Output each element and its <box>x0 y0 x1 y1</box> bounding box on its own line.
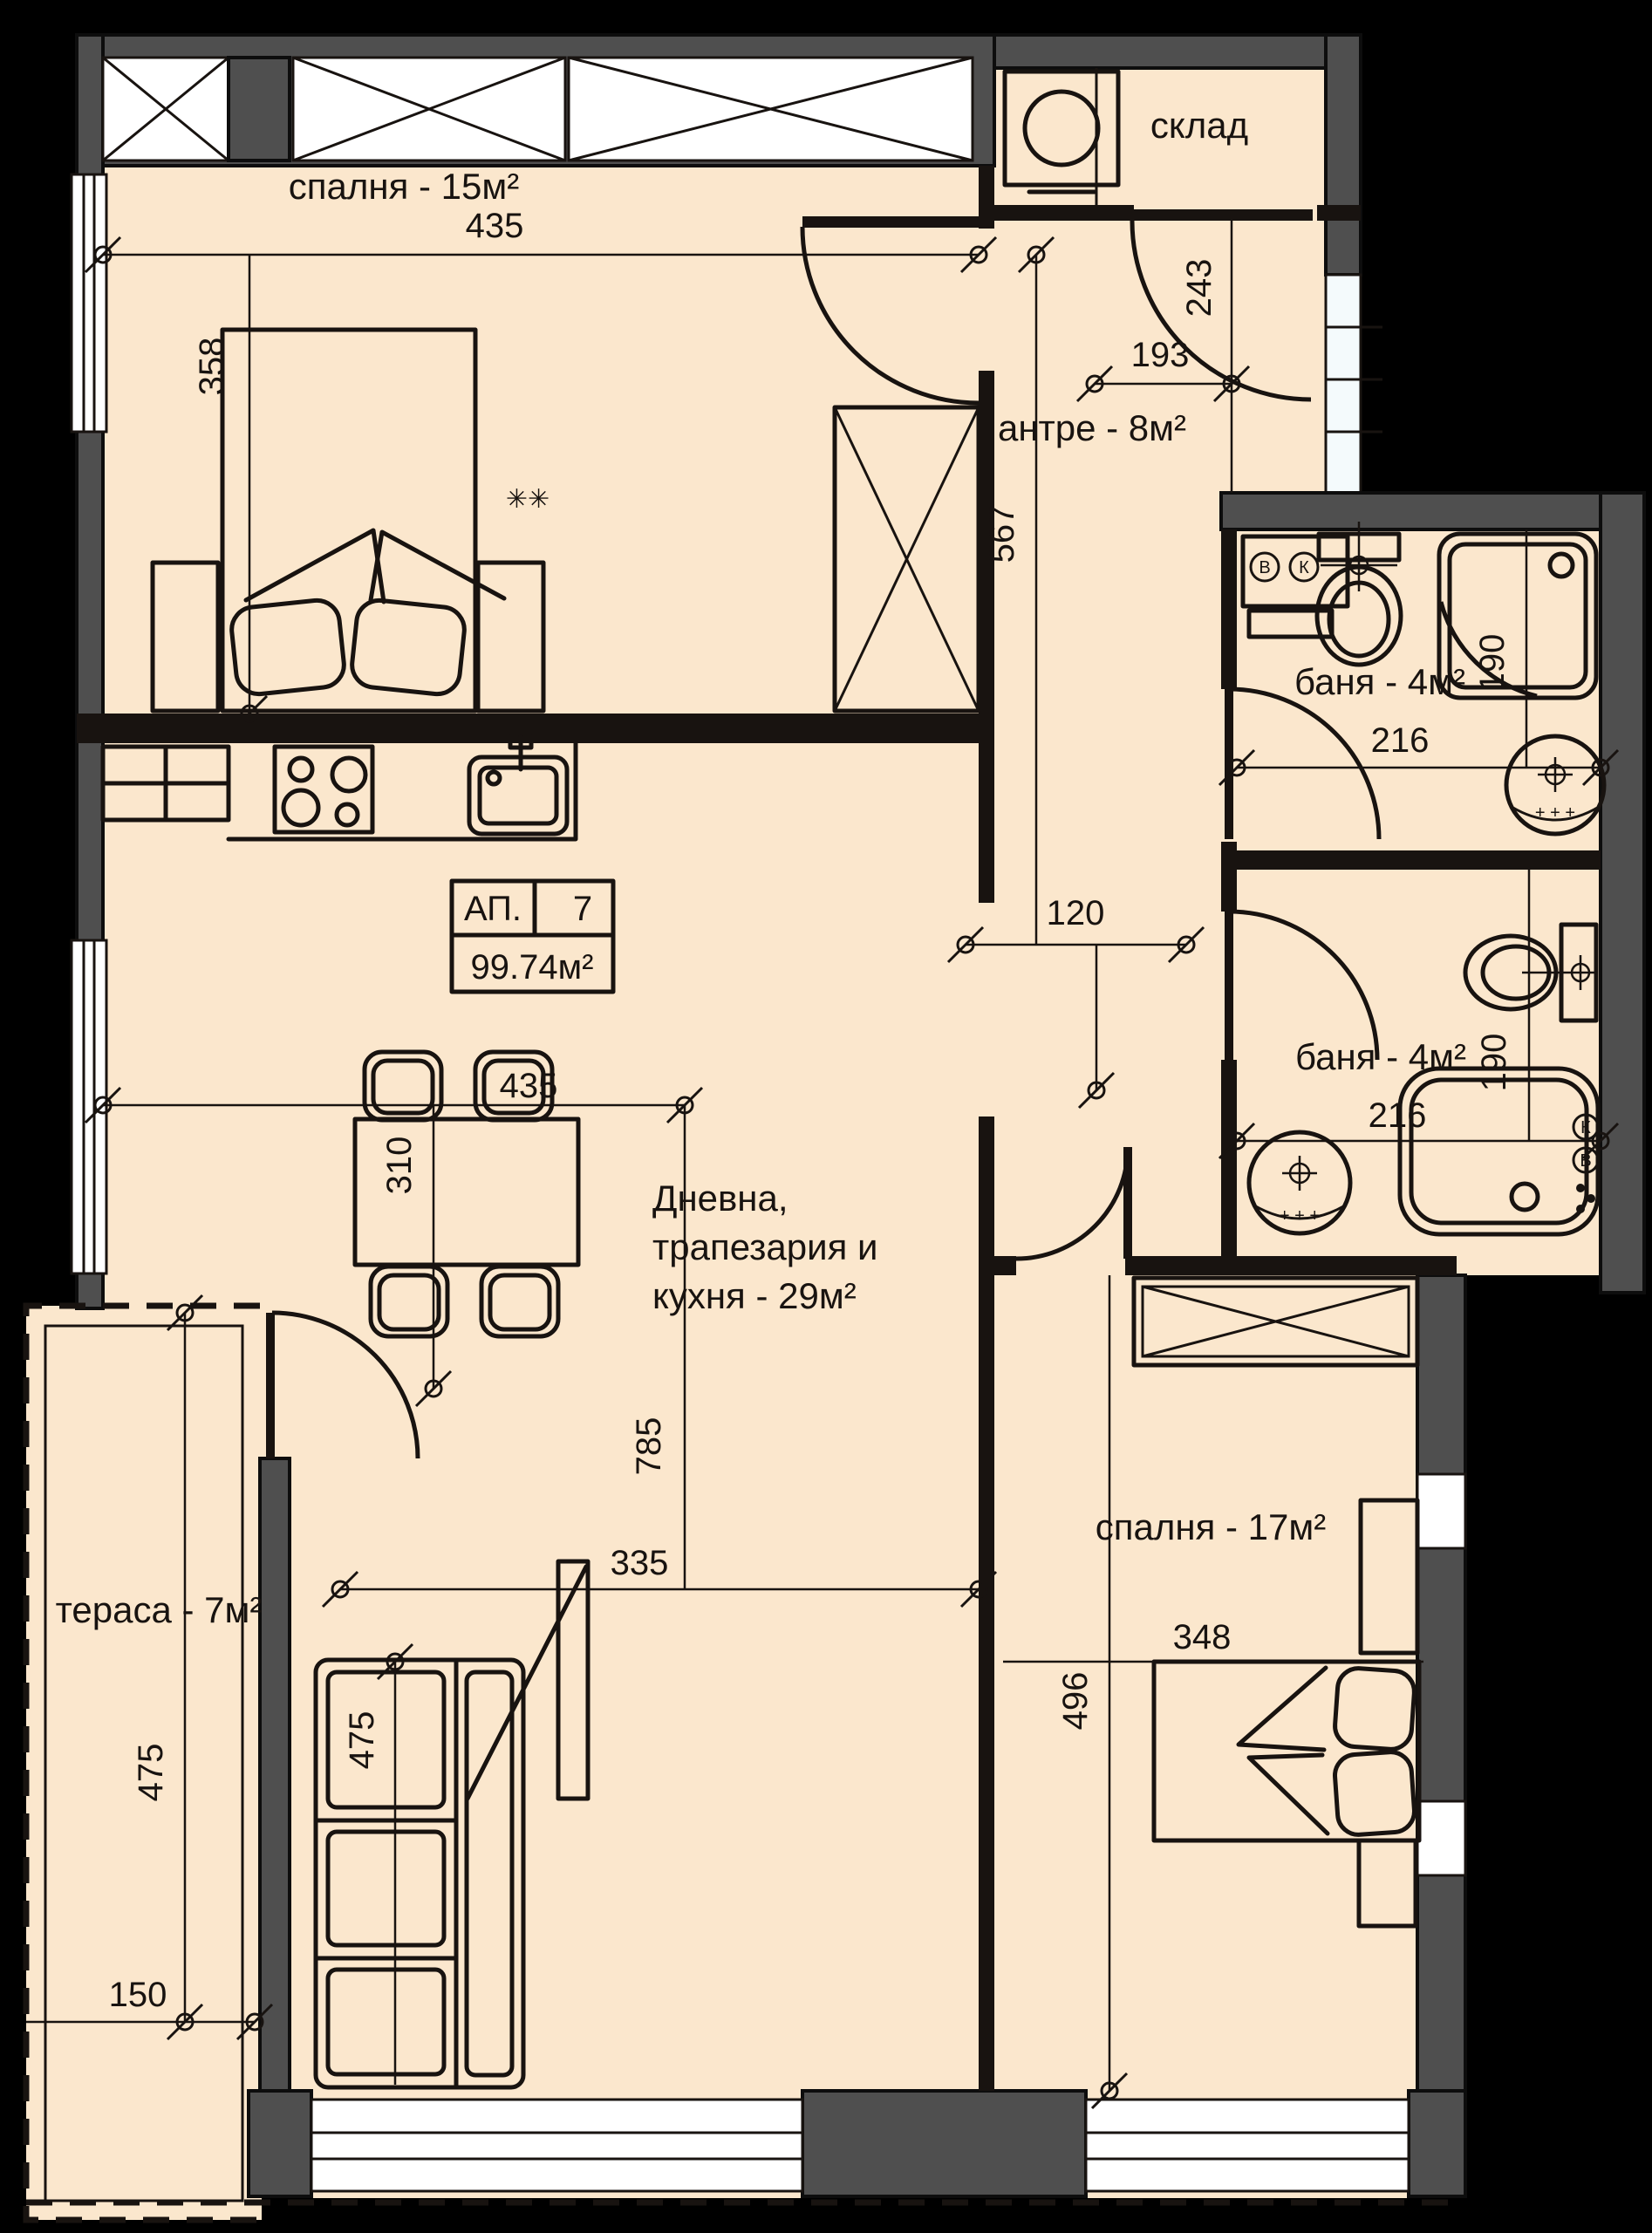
apartment-number: 7 <box>573 890 592 928</box>
wall-storage-bottom <box>1317 205 1361 221</box>
valve-hot-label: В <box>1259 558 1270 577</box>
dim-entry-width: 193 <box>1131 336 1190 374</box>
wardrobe-icon <box>293 58 565 160</box>
wall-storage-bottom <box>994 205 1134 221</box>
bath2-label: баня - 4м² <box>1295 1036 1466 1077</box>
wall-bedroom2-top <box>994 1256 1016 1275</box>
dim-living-height: 785 <box>630 1417 668 1476</box>
dim-entry-height: 567 <box>983 505 1021 563</box>
dim-terrace-height: 475 <box>132 1744 170 1802</box>
dim-bedroom1-width: 435 <box>466 207 524 245</box>
bedroom1-label: спалня - 15м² <box>289 166 519 207</box>
floor-marks: ✳✳ <box>506 485 550 514</box>
dim-bath2-width: 216 <box>1369 1096 1427 1135</box>
wall-living-hall <box>979 743 994 903</box>
terrace-label: тераса - 7м² <box>56 1589 263 1630</box>
entry-label: антре - 8м² <box>998 407 1186 448</box>
wall-bedroom2-top <box>1125 1256 1457 1275</box>
dim-bath1-width: 216 <box>1371 721 1430 760</box>
faucet-marks: + + + <box>1535 803 1575 823</box>
wall-bottom-pier <box>802 2091 1086 2196</box>
wardrobe-icon <box>103 58 229 160</box>
wall-living-bedroom2 <box>979 1116 994 2091</box>
wall-bedroom1-entry <box>979 166 994 229</box>
bedroom2-label: спалня - 17м² <box>1096 1506 1326 1547</box>
dim-entry-height2: 243 <box>1180 259 1219 318</box>
wall-bedroom1-bottom <box>77 714 994 743</box>
dim-terrace-width: 150 <box>109 1976 167 2014</box>
valve-cold-label: К <box>1580 1118 1591 1137</box>
dim-living-width: 335 <box>611 1544 669 1582</box>
bedroom2-bottom-window <box>1086 2100 1409 2191</box>
wall-top-storage <box>994 35 1361 68</box>
bedroom1-window <box>72 174 106 432</box>
dim-bed2-width: 348 <box>1173 1618 1232 1656</box>
floor-plan-page: склад спалня - 15м² ✳✳ антре - 8м² <box>0 0 1652 2233</box>
floor-plan-drawing: склад спалня - 15м² ✳✳ антре - 8м² <box>0 0 1652 2233</box>
living-label-1: Дневна, <box>652 1178 788 1219</box>
apartment-label: АП. <box>464 890 522 928</box>
wall-bottom-pier <box>1409 2091 1465 2196</box>
apartment-info-table: АП. 7 99.74м² <box>452 881 613 992</box>
wall-right-bedroom2 <box>1417 1275 1465 2196</box>
wall-hall-bath <box>1221 842 1237 912</box>
top-wardrobes <box>103 58 973 160</box>
bedroom2-side-window <box>1417 1801 1465 1875</box>
dim-sofa-height: 475 <box>343 1711 381 1770</box>
wall-bottom-pier <box>249 2091 311 2196</box>
entry-side-window <box>1326 275 1361 493</box>
wardrobe-icon <box>569 58 973 160</box>
valve-cold-label: К <box>1299 558 1309 577</box>
living-label-3: кухня - 29м² <box>652 1275 857 1316</box>
wall-living-terrace <box>260 1458 290 2091</box>
wall-hall-bath <box>1221 529 1237 689</box>
dim-hall-width: 120 <box>1047 894 1105 932</box>
storage-label: склад <box>1150 105 1248 146</box>
wall-right-bath <box>1601 493 1644 1293</box>
dim-dining-width: 435 <box>500 1067 558 1105</box>
wall-bath-top <box>1221 493 1609 529</box>
shaft-block <box>229 58 290 160</box>
dim-bedroom2-height: 496 <box>1056 1672 1095 1731</box>
living-label-2: трапезария и <box>652 1226 877 1267</box>
dim-dining-height: 310 <box>380 1137 419 1195</box>
wall-hall-bath <box>1221 1060 1237 1256</box>
bedroom2-side-window <box>1417 1474 1465 1548</box>
room-entry: антре - 8м² <box>998 407 1186 448</box>
faucet-marks: + + + <box>1280 1206 1320 1226</box>
dim-bedroom1-height: 358 <box>193 338 231 396</box>
dim-bath2-height: 190 <box>1475 1034 1513 1092</box>
apartment-area: 99.74м² <box>471 948 594 987</box>
wall-right-storage <box>1326 35 1361 275</box>
living-bottom-window <box>311 2100 802 2191</box>
dim-bath1-height: 190 <box>1473 634 1512 693</box>
wall-bath-divider <box>1237 850 1601 870</box>
